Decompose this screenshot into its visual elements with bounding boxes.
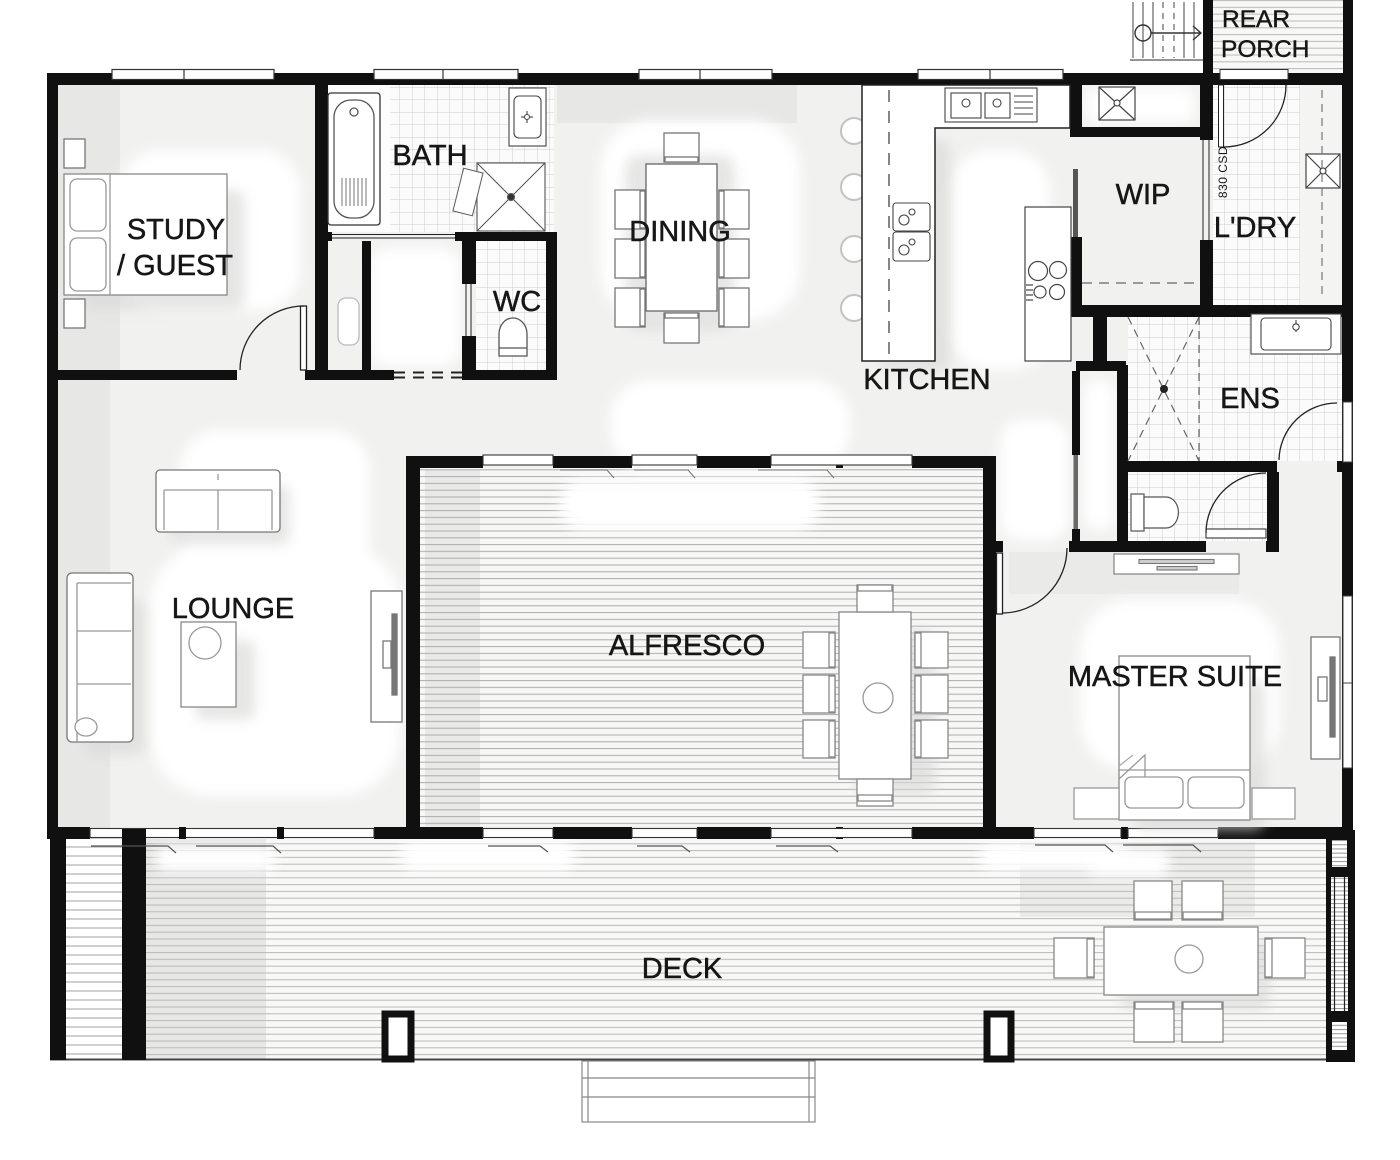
svg-text:L'DRY: L'DRY bbox=[1214, 212, 1296, 244]
svg-text:KITCHEN: KITCHEN bbox=[863, 364, 990, 396]
svg-text:WIP: WIP bbox=[1116, 179, 1171, 211]
svg-text:ENS: ENS bbox=[1220, 383, 1280, 415]
svg-text:DINING: DINING bbox=[629, 216, 731, 248]
svg-text:WC: WC bbox=[493, 286, 541, 318]
svg-text:BATH: BATH bbox=[392, 140, 467, 172]
svg-text:STUDY: STUDY bbox=[127, 214, 225, 246]
svg-text:ALFRESCO: ALFRESCO bbox=[609, 630, 765, 662]
svg-text:REAR: REAR bbox=[1222, 6, 1290, 33]
svg-text:/ GUEST: / GUEST bbox=[117, 250, 233, 282]
svg-text:PORCH: PORCH bbox=[1221, 36, 1309, 63]
svg-text:830 CSD: 830 CSD bbox=[1216, 146, 1230, 198]
svg-text:LOUNGE: LOUNGE bbox=[172, 593, 294, 625]
svg-text:DECK: DECK bbox=[642, 953, 723, 985]
svg-text:MASTER SUITE: MASTER SUITE bbox=[1068, 661, 1282, 693]
